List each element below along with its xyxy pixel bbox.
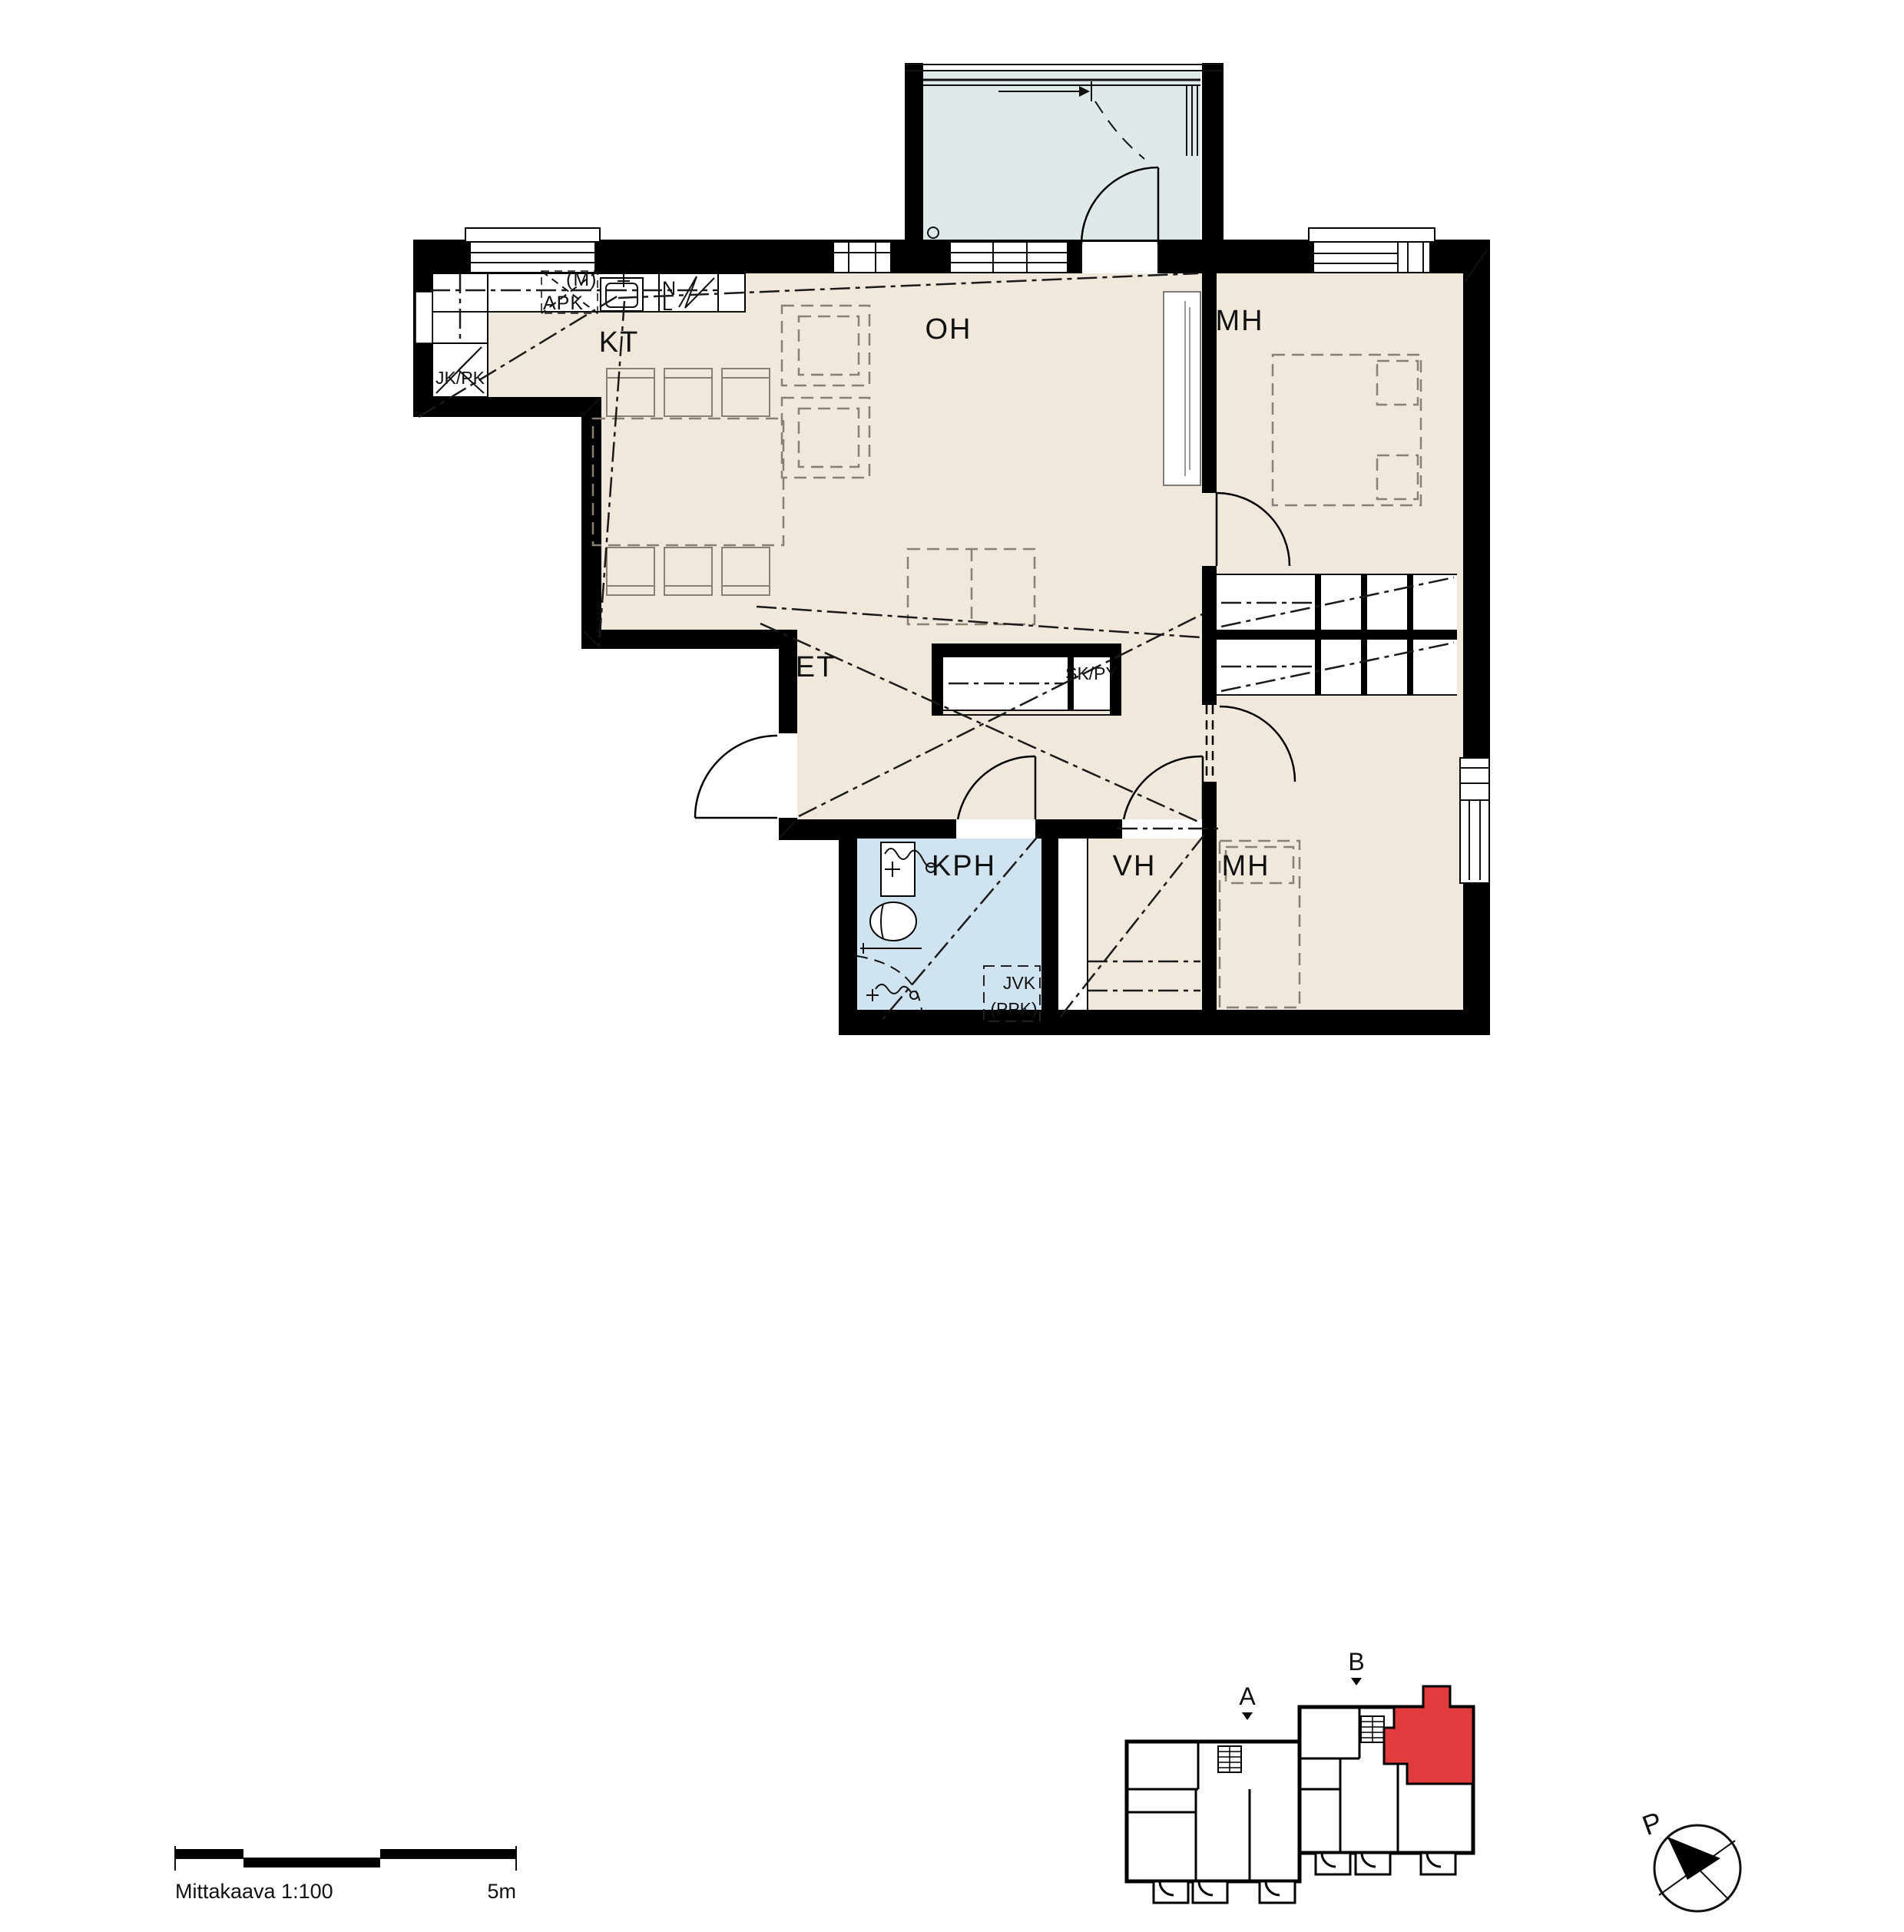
stair-label-b: B (1348, 1648, 1364, 1676)
stair-pointer-b (1351, 1678, 1362, 1686)
balcony-wall-left (905, 63, 923, 244)
label-ppk: (PPK) (990, 999, 1037, 1019)
toilet (870, 902, 916, 941)
label-l: L (662, 293, 674, 315)
room-label-oh: OH (926, 313, 972, 346)
room-label-mh-top: MH (1215, 305, 1263, 337)
scale-label: Mittakaava 1:100 (175, 1880, 333, 1903)
room-label-vh: VH (1113, 850, 1157, 882)
north-label: P (1638, 1805, 1667, 1841)
balcony-wall-right (1202, 63, 1224, 244)
kph-door-opening (956, 819, 1035, 839)
label-apk: APK (543, 293, 584, 314)
tv-unit (1164, 292, 1200, 485)
north-compass: P (1638, 1805, 1740, 1911)
stair-symbol-a (1218, 1746, 1241, 1772)
label-m: (M) (566, 269, 597, 290)
locator-building-b (1300, 1686, 1473, 1874)
label-sk-py: SK/PY (1065, 663, 1118, 683)
window-oh-balcony (950, 242, 1068, 273)
building-locator: A B (1127, 1648, 1473, 1903)
window-kitchen (470, 242, 595, 273)
locator-building-a (1127, 1742, 1300, 1903)
balcony (905, 63, 1224, 244)
balcony-door-opening (1081, 242, 1158, 273)
window-mh-bottom (1460, 758, 1489, 883)
scale-bar: Mittakaava 1:100 5m (175, 1846, 516, 1903)
window-sill-kitchen (465, 228, 600, 242)
balconies-b (1316, 1853, 1455, 1874)
window-mh-top (1313, 242, 1430, 273)
room-label-mh-bottom: MH (1221, 850, 1270, 882)
floorplan-drawing: KT OH MH ET KPH VH MH JK/PK APK (M) N L … (0, 0, 1904, 1932)
window-oh-small (833, 242, 891, 273)
window-sill-mh (1309, 228, 1435, 242)
sink (601, 273, 643, 311)
wall-niche (416, 292, 432, 343)
compass-needle (1667, 1837, 1720, 1880)
entrance-door (695, 736, 777, 818)
balconies-a (1154, 1881, 1295, 1903)
room-label-kt: KT (599, 326, 640, 359)
room-label-kph: KPH (932, 850, 996, 882)
room-label-et: ET (796, 651, 836, 683)
stair-pointer-a (1242, 1712, 1253, 1720)
label-jvk: JVK (1003, 973, 1036, 993)
stair-label-a: A (1239, 1682, 1256, 1710)
floorplan-page: KT OH MH ET KPH VH MH JK/PK APK (M) N L … (0, 0, 1904, 1932)
label-jk-pk: JK/PK (435, 368, 485, 388)
entrance-opening (779, 733, 797, 818)
scale-length-label: 5m (487, 1880, 516, 1903)
stair-symbol-b (1361, 1716, 1384, 1742)
